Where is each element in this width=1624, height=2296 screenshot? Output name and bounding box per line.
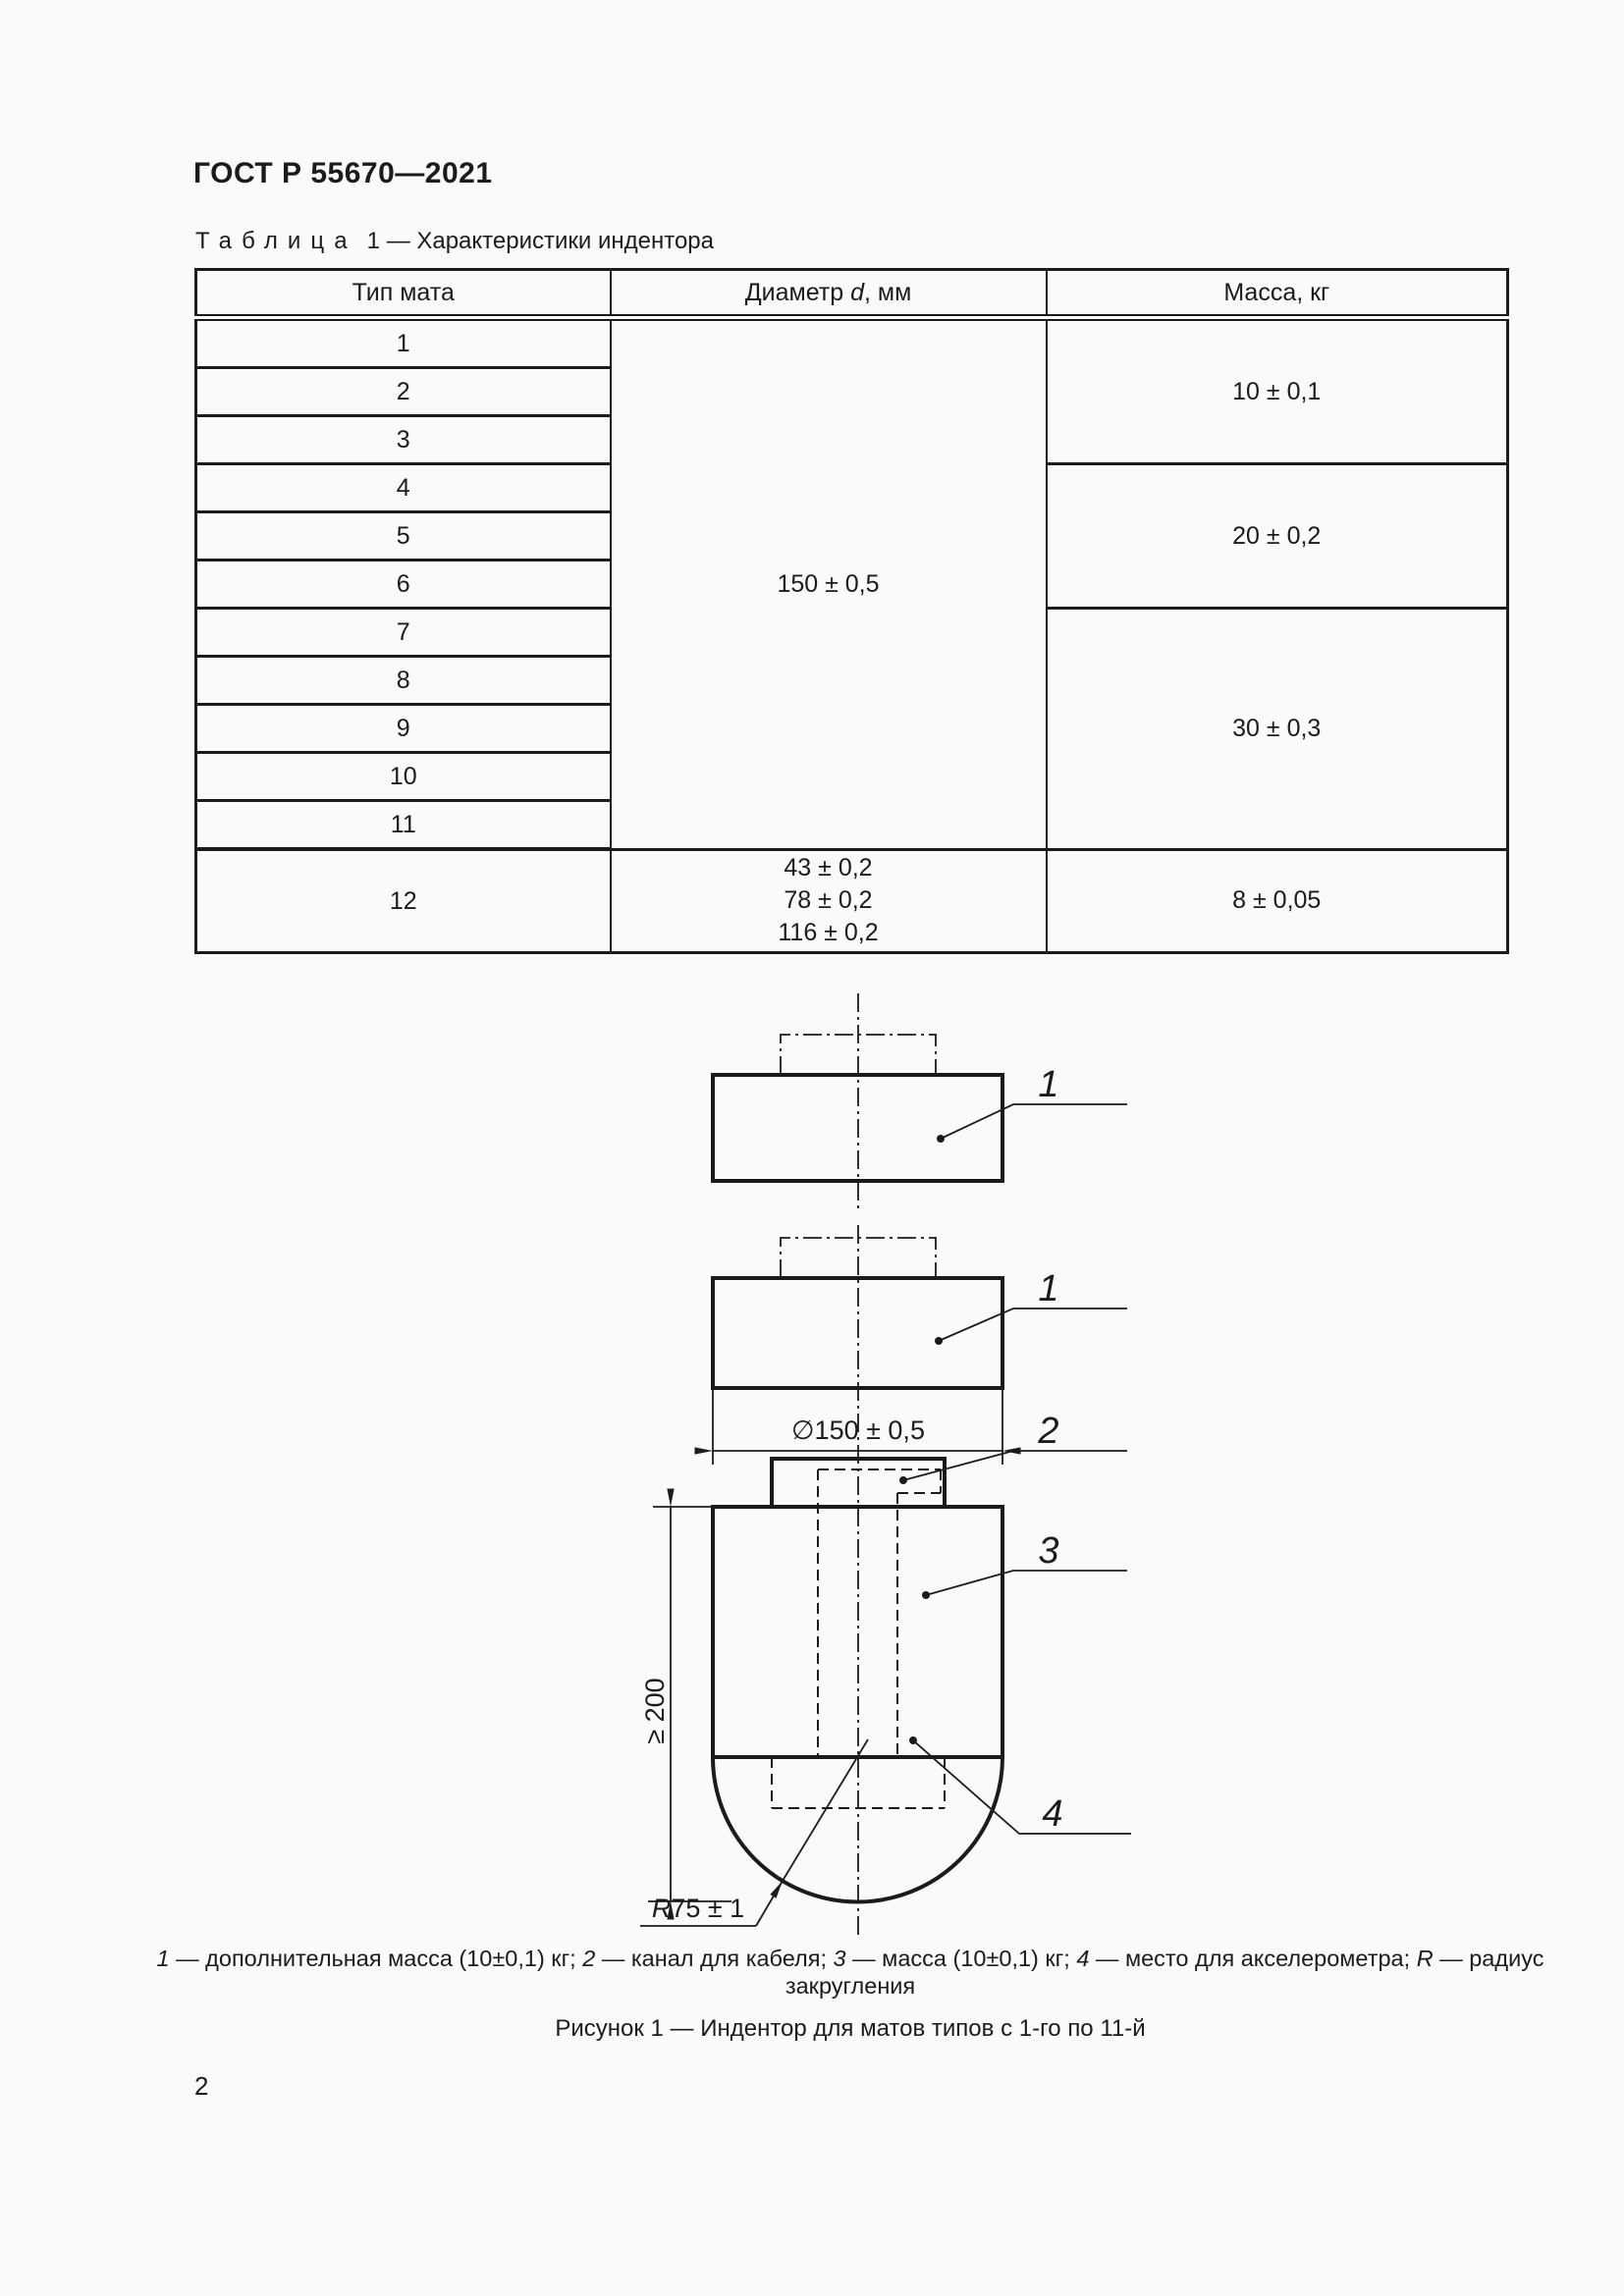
cell-mat-type: 2 xyxy=(196,368,611,416)
table-row: 1 150 ± 0,5 10 ± 0,1 xyxy=(196,318,1508,368)
indenter-characteristics-table: Тип мата Диаметр d, мм Масса, кг 1 150 ±… xyxy=(194,268,1509,954)
figure-legend-line2: закругления xyxy=(156,1972,1544,2000)
cell-diameter-type12: 43 ± 0,2 78 ± 0,2 116 ± 0,2 xyxy=(611,849,1047,953)
figure-label-2: 2 xyxy=(1037,1411,1058,1452)
cell-mat-type: 5 xyxy=(196,512,611,561)
cell-mat-type: 8 xyxy=(196,657,611,705)
diameter-value: 78 ± 0,2 xyxy=(612,884,1046,917)
indenter-technical-drawing: 1 1 ∅150 ± 0,5 xyxy=(550,982,1237,1953)
page-number: 2 xyxy=(194,2071,208,2102)
figure-label-1b: 1 xyxy=(1038,1268,1058,1309)
additional-mass-bottom: 1 ∅150 ± 0,5 xyxy=(713,1225,1127,1936)
document-page: ГОСТ Р 55670—2021 Таблица1 — Характерист… xyxy=(0,0,1624,2296)
diameter-value: 116 ± 0,2 xyxy=(612,917,1046,949)
indenter-body: 2 3 4 ≥ 200 R75 ± 1 xyxy=(640,1411,1131,1926)
cell-mass-group-1: 10 ± 0,1 xyxy=(1047,318,1508,464)
cell-mat-type: 4 xyxy=(196,464,611,512)
figure-caption: Рисунок 1 — Индентор для матов типов с 1… xyxy=(194,2015,1506,2043)
document-header: ГОСТ Р 55670—2021 xyxy=(193,157,493,190)
cell-mass-group-4: 8 ± 0,05 xyxy=(1047,849,1508,953)
table-header-row: Тип мата Диаметр d, мм Масса, кг xyxy=(196,270,1508,318)
diameter-value: 43 ± 0,2 xyxy=(612,852,1046,884)
col-header-mat-type: Тип мата xyxy=(196,270,611,318)
cell-mat-type: 1 xyxy=(196,318,611,368)
figure-legend-line1: 1 — дополнительная масса (10±0,1) кг; 2 … xyxy=(156,1945,1544,1972)
radius-dimension-text: R75 ± 1 xyxy=(652,1894,744,1923)
cell-mat-type: 12 xyxy=(196,849,611,953)
cell-mat-type: 7 xyxy=(196,609,611,657)
additional-mass-top: 1 xyxy=(713,993,1127,1210)
cell-mat-type: 10 xyxy=(196,753,611,801)
figure-legend: 1 — дополнительная масса (10±0,1) кг; 2 … xyxy=(156,1945,1544,2000)
col-header-diameter: Диаметр d, мм xyxy=(611,270,1047,318)
table-row: 12 43 ± 0,2 78 ± 0,2 116 ± 0,2 8 ± 0,05 xyxy=(196,849,1508,953)
cell-mat-type: 9 xyxy=(196,705,611,753)
figure-label-3: 3 xyxy=(1038,1530,1058,1572)
figure-label-1a: 1 xyxy=(1038,1064,1058,1105)
height-dimension-text: ≥ 200 xyxy=(640,1678,670,1743)
table-title: Таблица1 — Характеристики индентора xyxy=(195,228,714,255)
cell-diameter-main: 150 ± 0,5 xyxy=(611,318,1047,850)
table-title-text: 1 — Характеристики индентора xyxy=(367,228,714,254)
table-title-word: Таблица xyxy=(195,228,357,254)
cell-mat-type: 11 xyxy=(196,801,611,850)
diameter-dimension: ∅150 ± 0,5 xyxy=(791,1415,925,1445)
cell-mat-type: 6 xyxy=(196,561,611,609)
col-header-mass: Масса, кг xyxy=(1047,270,1508,318)
cell-mass-group-2: 20 ± 0,2 xyxy=(1047,464,1508,609)
cable-channel-hidden-lines xyxy=(818,1469,941,1757)
cell-mat-type: 3 xyxy=(196,416,611,464)
figure-label-4: 4 xyxy=(1042,1793,1062,1835)
cell-mass-group-3: 30 ± 0,3 xyxy=(1047,609,1508,850)
height-dimension: ≥ 200 xyxy=(640,1507,731,1901)
